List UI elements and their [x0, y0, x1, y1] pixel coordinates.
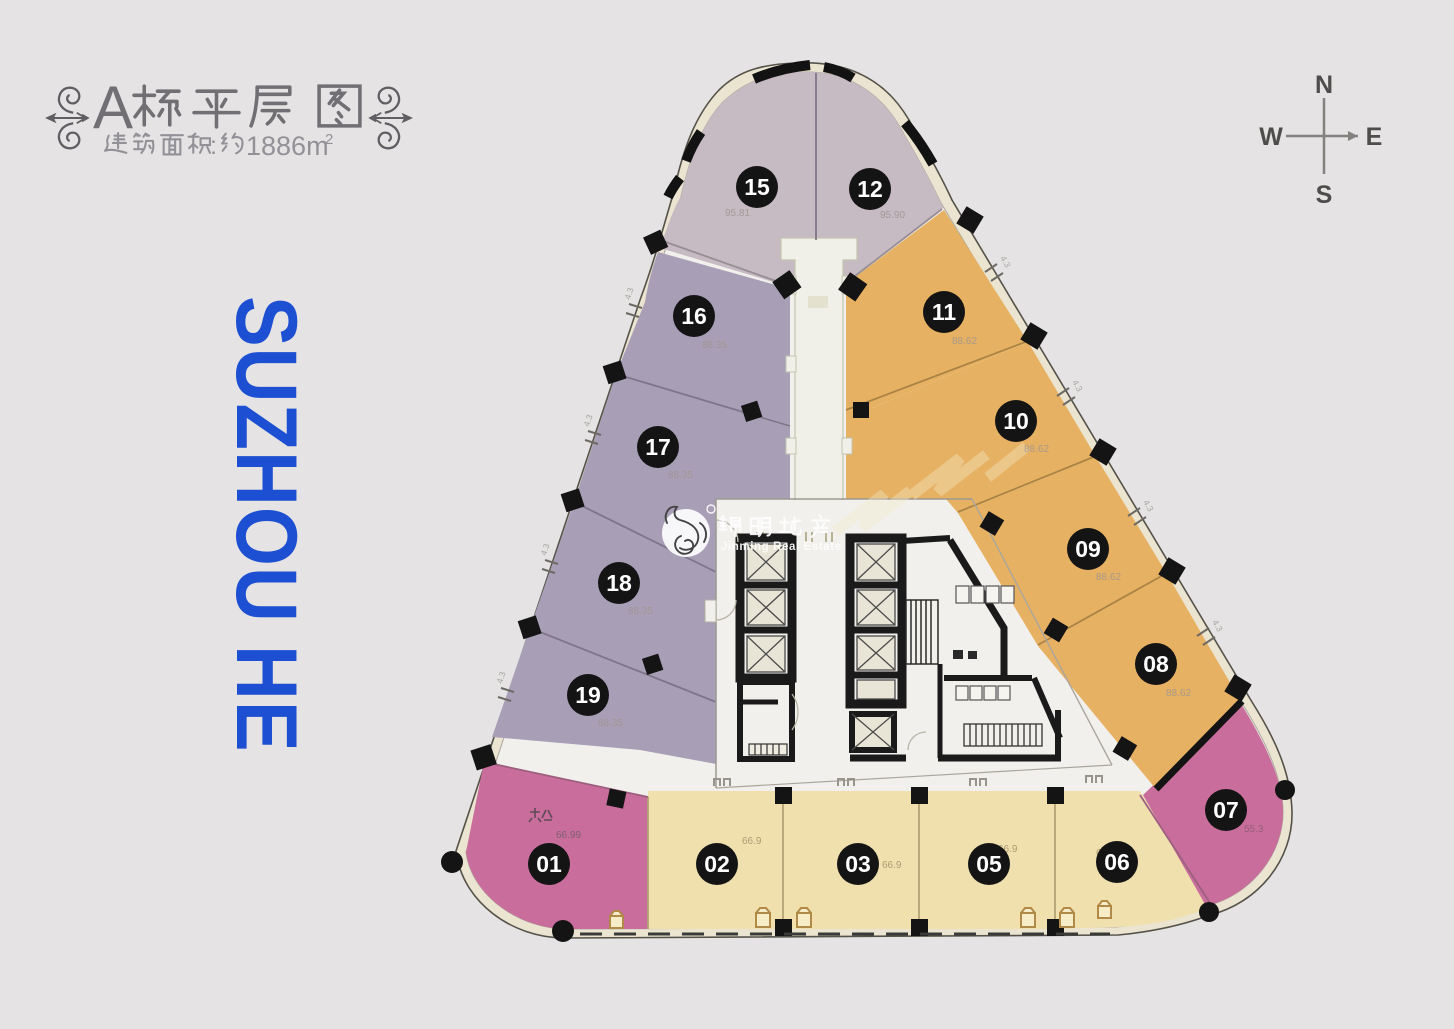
svg-text:A: A [93, 74, 133, 141]
svg-text:88.62: 88.62 [1166, 688, 1191, 699]
svg-text:2: 2 [325, 131, 333, 148]
svg-text:16: 16 [681, 303, 707, 329]
svg-text:18: 18 [606, 570, 632, 596]
svg-text::: : [210, 132, 217, 160]
svg-text:Jinming Real Estate: Jinming Real Estate [721, 541, 842, 553]
svg-text:17: 17 [645, 434, 671, 460]
svg-text:19: 19 [575, 682, 601, 708]
svg-text:10: 10 [1003, 408, 1029, 434]
svg-text:12: 12 [857, 176, 883, 202]
svg-text:88.35: 88.35 [668, 470, 693, 481]
svg-text:S: S [1316, 181, 1333, 209]
svg-text:03: 03 [845, 851, 871, 877]
svg-text:88.35: 88.35 [702, 340, 727, 351]
svg-text:08: 08 [1143, 651, 1169, 677]
svg-text:02: 02 [704, 851, 730, 877]
svg-text:95.81: 95.81 [725, 208, 750, 219]
svg-text:66.9: 66.9 [742, 836, 762, 847]
svg-text:88.62: 88.62 [1024, 444, 1049, 455]
svg-text:06: 06 [1104, 849, 1130, 875]
svg-text:95.90: 95.90 [880, 210, 905, 221]
svg-text:88.62: 88.62 [952, 336, 977, 347]
svg-text:09: 09 [1075, 536, 1101, 562]
svg-text:66.9: 66.9 [882, 860, 902, 871]
svg-text:11: 11 [932, 299, 957, 325]
svg-text:01: 01 [536, 851, 562, 877]
svg-text:88.35: 88.35 [628, 606, 653, 617]
svg-text:N: N [1315, 71, 1333, 99]
svg-text:88.62: 88.62 [1096, 572, 1121, 583]
svg-text:05: 05 [976, 851, 1002, 877]
svg-text:07: 07 [1213, 797, 1239, 823]
svg-text:88.35: 88.35 [598, 718, 623, 729]
svg-text:1886m: 1886m [246, 131, 329, 161]
svg-text:55.3: 55.3 [1244, 824, 1264, 835]
svg-text:15: 15 [744, 174, 770, 200]
svg-text:W: W [1259, 123, 1283, 151]
svg-text:66.99: 66.99 [556, 830, 581, 841]
svg-text:SUZHOU HE: SUZHOU HE [218, 296, 313, 753]
svg-text:E: E [1366, 123, 1383, 151]
